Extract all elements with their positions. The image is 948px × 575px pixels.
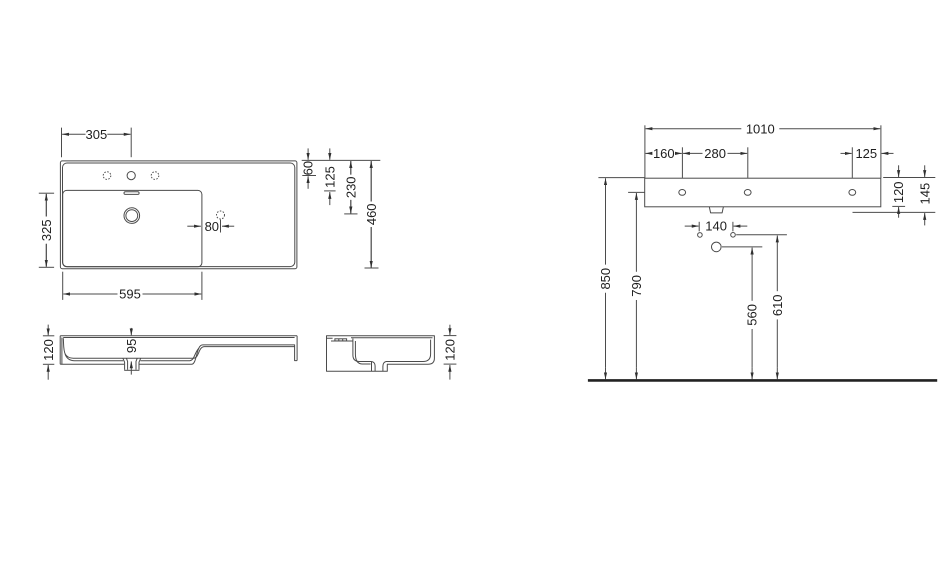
svg-text:120: 120 bbox=[41, 339, 56, 361]
svg-text:230: 230 bbox=[343, 176, 358, 198]
svg-text:460: 460 bbox=[364, 203, 379, 225]
svg-text:595: 595 bbox=[119, 287, 141, 302]
svg-text:160: 160 bbox=[653, 146, 675, 161]
svg-text:560: 560 bbox=[745, 304, 760, 326]
svg-text:120: 120 bbox=[891, 181, 906, 203]
svg-text:95: 95 bbox=[124, 339, 139, 353]
svg-text:140: 140 bbox=[705, 219, 727, 234]
svg-text:120: 120 bbox=[443, 339, 458, 361]
svg-text:325: 325 bbox=[39, 219, 54, 241]
svg-text:1010: 1010 bbox=[746, 121, 775, 136]
svg-text:125: 125 bbox=[855, 146, 877, 161]
svg-text:60: 60 bbox=[301, 161, 316, 175]
svg-text:280: 280 bbox=[704, 146, 726, 161]
svg-text:610: 610 bbox=[770, 294, 785, 316]
svg-text:125: 125 bbox=[322, 166, 337, 188]
svg-text:850: 850 bbox=[598, 268, 613, 290]
svg-text:790: 790 bbox=[629, 275, 644, 297]
svg-text:305: 305 bbox=[86, 127, 108, 142]
svg-text:80: 80 bbox=[205, 219, 219, 234]
svg-text:145: 145 bbox=[917, 183, 932, 205]
